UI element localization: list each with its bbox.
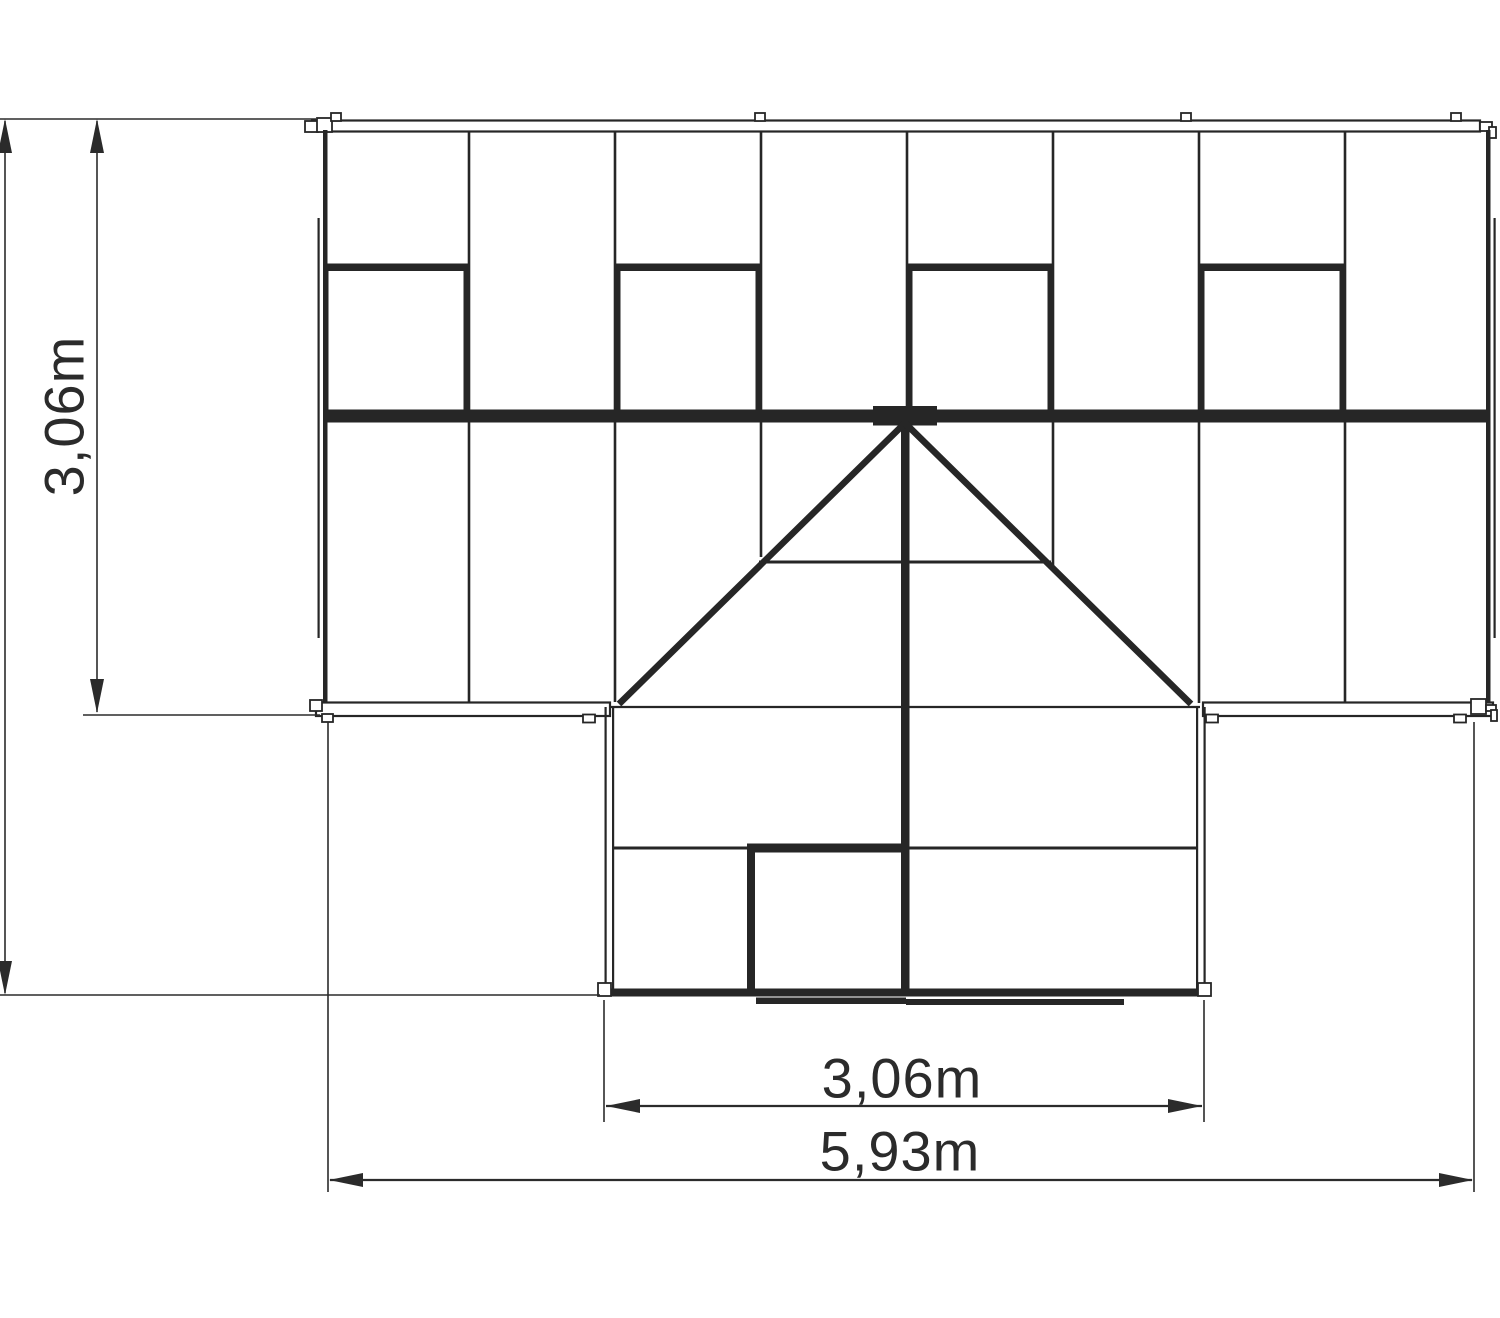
right-gutter-line	[1494, 218, 1496, 638]
roof-window-side	[1048, 264, 1053, 411]
top-eave-tab	[331, 113, 341, 121]
arrowhead-down	[0, 961, 12, 995]
top-eave-tab	[1181, 113, 1191, 121]
roof-window-top	[1199, 264, 1345, 272]
front-slope-mullion	[760, 422, 763, 557]
roof-window-top	[907, 264, 1053, 272]
eave-tab	[1454, 715, 1466, 723]
roof-window-side	[1340, 264, 1345, 411]
top-eave-left-clip	[317, 118, 332, 132]
dim-label-porch-width: 3,06m	[822, 1046, 983, 1111]
porch-left-wall	[605, 707, 607, 996]
door-threshold	[906, 999, 1124, 1005]
arrowhead-down	[90, 679, 104, 713]
eave-clip	[310, 700, 322, 711]
dim-label-side-depth: 3,06m	[32, 336, 97, 497]
porch-bottom-bar	[604, 989, 1205, 997]
roof-window-side	[908, 264, 913, 411]
roof-window-side	[616, 264, 621, 411]
porch-corner-clip	[598, 983, 611, 996]
arrowhead-left	[606, 1099, 640, 1113]
eave-right-hook	[1491, 710, 1497, 721]
left-gutter-line	[318, 218, 320, 638]
right-eave-bar	[1203, 703, 1493, 717]
dim-label-total-width: 5,93m	[820, 1119, 981, 1184]
eave-right-clip	[1471, 699, 1486, 714]
left-eave-bar	[316, 703, 610, 717]
front-slope-mullion	[468, 422, 471, 703]
eave-tab	[1206, 715, 1218, 723]
front-slope-mullion	[614, 422, 617, 702]
porch-right-wall	[1204, 707, 1206, 996]
front-slope-mullion	[1344, 422, 1347, 703]
eave-tab	[583, 715, 595, 723]
roof-window-side	[464, 264, 469, 411]
porch-corner-clip	[1198, 983, 1211, 996]
top-eave-bar	[312, 121, 1480, 132]
arrowhead-right	[1439, 1173, 1473, 1187]
roof-window-side	[1200, 264, 1205, 411]
roof-window-side	[324, 264, 329, 411]
arrowhead-up	[90, 119, 104, 153]
technical-drawing-canvas: 3,06m 3,06m 5,93m	[0, 0, 1500, 1318]
front-slope-mullion	[1198, 422, 1201, 703]
porch-left-wall-inner	[612, 707, 614, 996]
door-left-frame	[747, 844, 755, 997]
roof-window-top	[323, 264, 469, 272]
roof-window-side	[756, 264, 761, 411]
porch-right-wall-inner	[1196, 707, 1198, 996]
roof-window-top	[615, 264, 761, 272]
arrowhead-right	[1168, 1099, 1202, 1113]
arrowhead-up	[0, 119, 12, 153]
door-threshold	[756, 998, 906, 1005]
drawing-svg	[0, 0, 1500, 1318]
top-eave-tab	[1451, 113, 1461, 121]
top-eave-left-clip	[305, 121, 318, 132]
top-eave-tab	[755, 113, 765, 121]
arrowhead-left	[329, 1173, 363, 1187]
front-slope-mullion	[1052, 422, 1055, 569]
eave-tab	[322, 714, 333, 722]
